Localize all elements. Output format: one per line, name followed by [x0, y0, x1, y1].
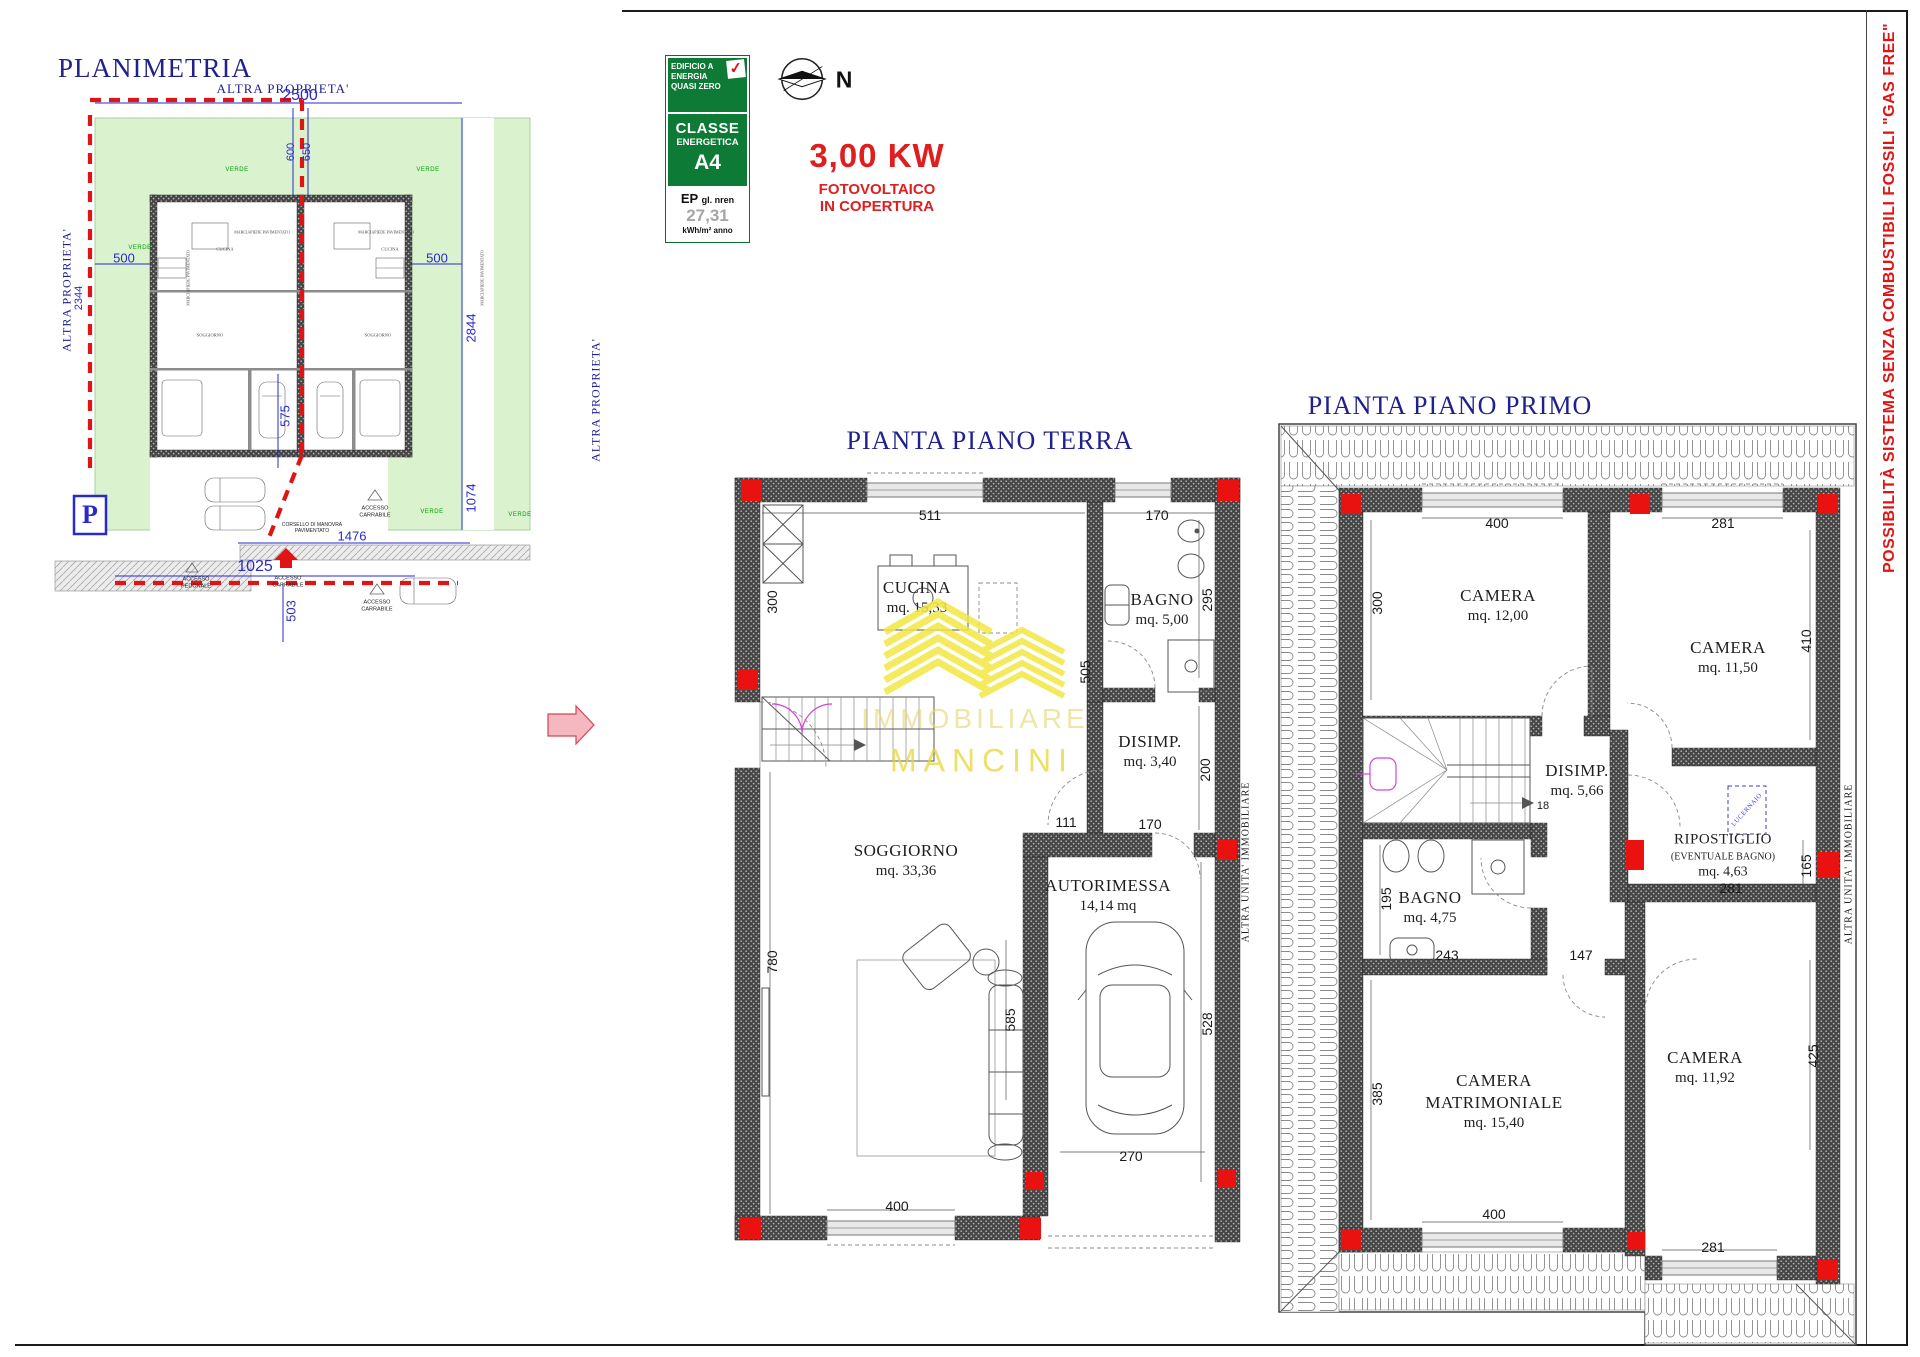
marciapiede-label-2: MARCIAPIEDE PAVIMENTATO: [358, 230, 414, 235]
pt-dim-295: 295: [1199, 588, 1215, 611]
dim-503: 503: [284, 600, 299, 622]
room-autorimessa-area: 14,14 mq: [1045, 897, 1171, 917]
room-bagno-pp-name: BAGNO: [1399, 887, 1462, 909]
energy-badge-header: EDIFICIO A ENERGIA QUASI ZERO ✓: [668, 58, 747, 112]
room-disimp-pp-name: DISIMP.: [1545, 760, 1609, 782]
room-ripostiglio-area: mq. 4,63: [1671, 863, 1775, 881]
dim-2500: 2500: [282, 87, 318, 105]
energy-badge-header-text: EDIFICIO A ENERGIA QUASI ZERO: [671, 62, 727, 92]
ep-value: 27,31: [668, 206, 747, 226]
room-disimp-pt: DISIMP. mq. 3,40: [1118, 731, 1182, 773]
site-room-soggiorno-left: SOGGIORNO: [197, 333, 224, 338]
site-plan-drawing: [40, 80, 600, 650]
ep-unit: kWh/m² anno: [668, 226, 747, 235]
energetica-label: ENERGETICA: [668, 137, 747, 148]
pt-dim-300: 300: [764, 590, 780, 613]
pp-dim-281b: 281: [1719, 880, 1742, 896]
ground-floor-drawing: [540, 380, 1280, 1280]
pp-dim-165: 165: [1798, 854, 1814, 877]
room-autorimessa-name: AUTORIMESSA: [1045, 875, 1171, 897]
pp-dim-300: 300: [1369, 591, 1385, 614]
classe-label: CLASSE: [668, 120, 747, 137]
room-camera-2-name: CAMERA: [1690, 637, 1766, 659]
pt-dim-528: 528: [1199, 1012, 1215, 1035]
room-camera-1-area: mq. 12,00: [1460, 607, 1536, 627]
floor-plan-sheet: PLANIMETRIA: [0, 0, 1920, 1357]
compass-north-label: N: [836, 67, 853, 94]
sheet-border-top: [622, 10, 1908, 12]
sheet-border-right: [1906, 10, 1908, 1346]
site-room-cucina-left: CUCINA: [216, 247, 233, 252]
dim-650: 650: [301, 143, 313, 161]
room-camera-matrimoniale: CAMERA MATRIMONIALE mq. 15,40: [1425, 1070, 1562, 1134]
pt-dim-511: 511: [919, 507, 941, 523]
room-autorimessa: AUTORIMESSA 14,14 mq: [1045, 875, 1171, 917]
pt-dim-170a: 170: [1145, 507, 1168, 523]
dim-1074: 1074: [464, 484, 479, 513]
room-soggiorno-name: SOGGIORNO: [854, 840, 959, 862]
pt-dim-400: 400: [885, 1198, 908, 1214]
marciapiede-label-4: MARCIAPIEDE PAVIMENTATO: [480, 250, 485, 306]
pt-dim-505: 505: [1077, 660, 1093, 683]
accesso-carrabile-label-1: ACCESSO CARRABILE: [349, 505, 401, 518]
photovoltaic-note: 3,00 KW FOTOVOLTAICO IN COPERTURA: [809, 137, 944, 215]
first-floor-drawing: [1260, 390, 1880, 1357]
verde-label-1: VERDE: [225, 167, 248, 173]
room-disimp-pp-area: mq. 5,66: [1545, 782, 1609, 802]
accesso-carrabile-label-2: ACCESSO CARRABILE: [351, 599, 403, 612]
room-disimp-pp: DISIMP. mq. 5,66: [1545, 760, 1609, 802]
room-cucina-area: mq. 15,33: [883, 599, 951, 619]
energy-badge-ep: EP gl. nren 27,31 kWh/m² anno: [668, 188, 747, 240]
pv-power: 3,00 KW: [809, 137, 944, 175]
pp-dim-281c: 281: [1701, 1239, 1724, 1255]
verde-label-2: VERDE: [416, 167, 439, 173]
pt-dim-780: 780: [764, 950, 780, 973]
parking-symbol: P: [82, 500, 98, 530]
corsello-label: CORSELLO DI MANOVRA PAVIMENTATO: [280, 522, 344, 534]
dim-500-right: 500: [426, 251, 448, 266]
energy-class-badge: EDIFICIO A ENERGIA QUASI ZERO ✓ CLASSE E…: [665, 55, 750, 243]
room-disimp-pt-name: DISIMP.: [1118, 731, 1182, 753]
room-camera-1: CAMERA mq. 12,00: [1460, 585, 1536, 627]
dim-600: 600: [285, 143, 297, 161]
energy-badge-class: CLASSE ENERGETICA A4: [668, 114, 747, 186]
check-icon: ✓: [726, 59, 746, 79]
room-camera-3: CAMERA mq. 11,92: [1667, 1047, 1743, 1089]
pp-dim-195: 195: [1378, 887, 1394, 910]
room-camera-matr-name: CAMERA: [1425, 1070, 1562, 1092]
room-soggiorno: SOGGIORNO mq. 33,36: [854, 840, 959, 882]
pt-dim-585: 585: [1002, 1008, 1018, 1031]
ep-sublabel: gl. nren: [702, 195, 735, 205]
gas-free-note: POSSIBILITÀ SISTEMA SENZA COMBUSTIBILI F…: [1881, 23, 1899, 573]
pv-line1: FOTOVOLTAICO: [809, 181, 944, 198]
verde-label-3: VERDE: [128, 245, 151, 251]
pv-line2: IN COPERTURA: [809, 198, 944, 215]
pp-dim-400b: 400: [1482, 1206, 1505, 1222]
marciapiede-label-3: MARCIAPIEDE PAVIMENTATO: [186, 250, 191, 306]
pp-dim-425: 425: [1805, 1044, 1821, 1067]
verde-label-5: VERDE: [508, 512, 531, 518]
room-bagno-pt: BAGNO mq. 5,00: [1131, 589, 1194, 631]
site-room-cucina-right: CUCINA: [381, 247, 398, 252]
pp-unit-label: ALTRA UNITA' IMMOBILIARE: [1844, 784, 1855, 945]
pt-dim-200: 200: [1197, 758, 1213, 781]
pp-dim-243: 243: [1435, 947, 1458, 963]
room-camera-2: CAMERA mq. 11,50: [1690, 637, 1766, 679]
room-ripostiglio-name: RIPOSTIGLIO: [1671, 831, 1775, 851]
room-camera-2-area: mq. 11,50: [1690, 659, 1766, 679]
room-bagno-pp-area: mq. 4,75: [1399, 909, 1462, 929]
pp-dim-385: 385: [1369, 1082, 1385, 1105]
pp-dim-410: 410: [1798, 629, 1814, 652]
room-cucina-name: CUCINA: [883, 577, 951, 599]
pp-dim-400a: 400: [1485, 515, 1508, 531]
dim-500-left: 500: [113, 251, 135, 266]
pp-dim-147: 147: [1569, 947, 1592, 963]
room-cucina: CUCINA mq. 15,33: [883, 577, 951, 619]
room-camera-3-name: CAMERA: [1667, 1047, 1743, 1069]
room-bagno-pp: BAGNO mq. 4,75: [1399, 887, 1462, 929]
dim-1025: 1025: [237, 558, 273, 576]
room-disimp-pt-area: mq. 3,40: [1118, 753, 1182, 773]
dim-2344: 2344: [73, 286, 85, 310]
marciapiede-label-1: MARCIAPIEDE PAVIMENTATO: [234, 230, 290, 235]
room-camera-matr-area: mq. 15,40: [1425, 1114, 1562, 1134]
room-ripostiglio-sub: (EVENTUALE BAGNO): [1671, 850, 1775, 863]
room-ripostiglio: RIPOSTIGLIO (EVENTUALE BAGNO) mq. 4,63: [1671, 831, 1775, 882]
room-soggiorno-area: mq. 33,36: [854, 862, 959, 882]
pp-dim-18: 18: [1537, 800, 1549, 812]
ep-label: EP: [681, 191, 698, 206]
dim-2844: 2844: [464, 314, 479, 343]
site-room-soggiorno-right: SOGGIORNO: [365, 333, 392, 338]
room-camera-1-name: CAMERA: [1460, 585, 1536, 607]
room-bagno-pt-area: mq. 5,00: [1131, 611, 1194, 631]
accesso-carrabile-label-3: ACCESSO CARRABILE: [262, 575, 314, 588]
accesso-pedonale-label: ACCESSO PEDONALE: [170, 576, 222, 589]
room-camera-matr-name2: MATRIMONIALE: [1425, 1092, 1562, 1114]
room-camera-3-area: mq. 11,92: [1667, 1069, 1743, 1089]
compass-icon: [775, 51, 833, 109]
verde-label-4: VERDE: [420, 509, 443, 515]
pt-dim-170b: 170: [1138, 816, 1161, 832]
dim-575: 575: [278, 405, 293, 427]
pt-unit-label: ALTRA UNITA' IMMOBILIARE: [1241, 782, 1252, 943]
energy-class-value: A4: [668, 151, 747, 175]
pt-dim-270: 270: [1119, 1148, 1142, 1164]
pp-dim-281a: 281: [1711, 515, 1734, 531]
pt-dim-111: 111: [1055, 814, 1076, 830]
room-bagno-pt-name: BAGNO: [1131, 589, 1194, 611]
